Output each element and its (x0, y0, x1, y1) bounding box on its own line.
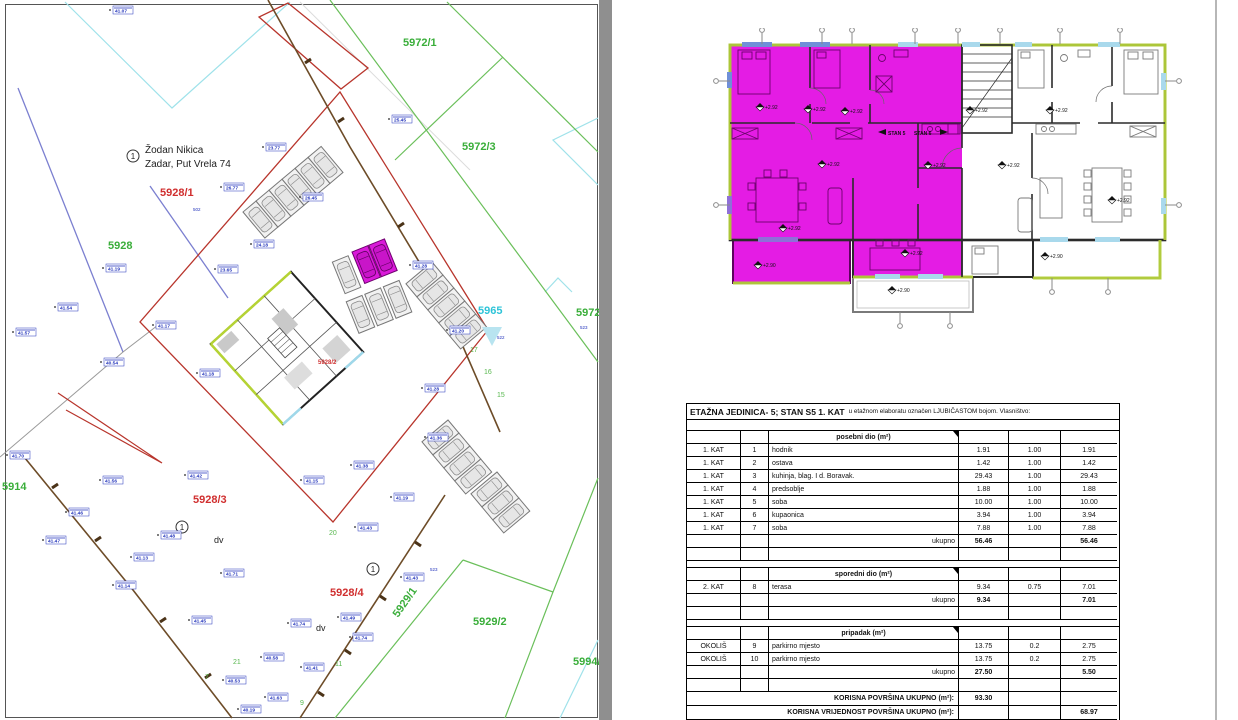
table-body: posebni dio (m²)1. KAT1hodnik1.911.001.9… (687, 420, 1119, 720)
svg-text:+2.90: +2.90 (1050, 254, 1063, 260)
table-cell: soba (769, 496, 959, 509)
point-label: 40.58 (260, 653, 284, 662)
table-cell: 1.88 (1061, 483, 1117, 496)
table-cell (741, 535, 769, 548)
table-row (687, 620, 1119, 627)
svg-text:26.45: 26.45 (305, 196, 317, 202)
point-label: 40.54 (100, 358, 124, 367)
table-cell: soba (769, 522, 959, 535)
point-label: 41.45 (188, 616, 212, 625)
table-row: posebni dio (m²) (687, 431, 1119, 444)
svg-text:1: 1 (180, 523, 185, 532)
point-label: 24.18 (250, 240, 274, 249)
table-cell: 56.46 (1061, 535, 1117, 548)
parcel-labels: 5965 (478, 305, 502, 317)
table-cell: 1 (741, 444, 769, 457)
table-cell: parkirno mjesto (769, 640, 959, 653)
table-cell: posebni dio (m²) (769, 431, 959, 444)
table-cell (741, 594, 769, 607)
table-cell: 1. KAT (687, 483, 741, 496)
table-cell (687, 431, 741, 444)
svg-text:+2.92: +2.92 (788, 226, 801, 232)
svg-text:41.70: 41.70 (12, 454, 24, 460)
point-label: 41.15 (300, 476, 324, 485)
table-cell (769, 607, 959, 620)
table-cell: ukupno (769, 666, 959, 679)
svg-text:+2.92: +2.92 (910, 251, 923, 257)
table-cell (1061, 431, 1117, 444)
table-cell (687, 548, 741, 561)
point-label: 41.18 (196, 369, 220, 378)
table-cell: 1.91 (1061, 444, 1117, 457)
parcel-labels: 5929/2 (473, 616, 507, 628)
table-row: 1. KAT5soba10.001.0010.00 (687, 496, 1119, 509)
table-cell: 1. KAT (687, 496, 741, 509)
table-cell (1061, 607, 1117, 620)
table-cell: 7 (741, 522, 769, 535)
svg-text:41.56: 41.56 (105, 479, 117, 485)
table-cell: 3.94 (959, 509, 1009, 522)
table-cell: OKOLIŠ (687, 653, 741, 666)
point-label: 41.56 (99, 476, 123, 485)
green-point-numbers: 17 (470, 347, 478, 354)
table-row: 1. KAT1hodnik1.911.001.91 (687, 444, 1119, 457)
building-footprint (211, 272, 364, 425)
svg-text:+2.90: +2.90 (897, 288, 910, 294)
table-cell: 9.34 (959, 581, 1009, 594)
table-row: OKOLIŠ10parkirno mjesto13.750.22.75 (687, 653, 1119, 666)
point-label: 41.17 (152, 321, 176, 330)
table-cell: hodnik (769, 444, 959, 457)
point-label: 41.28 (421, 384, 445, 393)
table-row (687, 607, 1119, 620)
table-cell: 56.46 (959, 535, 1009, 548)
table-cell: 0.75 (1009, 581, 1061, 594)
table-cell (1061, 679, 1117, 692)
point-label: 23.65 (214, 265, 238, 274)
table-cell: KORISNA VRIJEDNOST POVRŠINA UKUPNO (m²): (687, 706, 959, 720)
table-cell: 1. KAT (687, 444, 741, 457)
svg-text:23.65: 23.65 (220, 268, 232, 274)
dv-labels: dv (214, 535, 224, 545)
table-cell (769, 679, 959, 692)
table-cell: 5.50 (1061, 666, 1117, 679)
table-cell (741, 607, 769, 620)
parcel-labels: 5929/1 (391, 585, 420, 619)
svg-text:26.77: 26.77 (226, 186, 238, 192)
point-label: 41.13 (130, 553, 154, 562)
table-row: sporedni dio (m²) (687, 568, 1119, 581)
parcel-labels: 5928/3 (193, 494, 227, 506)
table-cell (1009, 607, 1061, 620)
table-cell: terasa (769, 581, 959, 594)
svg-text:40.19: 40.19 (243, 708, 255, 714)
svg-text:41.15: 41.15 (306, 479, 318, 485)
table-cell (1009, 706, 1061, 720)
table-cell: 13.75 (959, 653, 1009, 666)
point-label: 41.70 (6, 451, 30, 460)
svg-text:41.36: 41.36 (430, 436, 442, 442)
table-cell: 4 (741, 483, 769, 496)
dv-labels: dv (316, 623, 326, 633)
svg-text:41.49: 41.49 (343, 616, 355, 622)
svg-text:41.19: 41.19 (108, 267, 120, 273)
svg-text:41.57: 41.57 (18, 331, 30, 337)
dv-labels: dvdv (214, 535, 326, 633)
page-right-border (1215, 0, 1217, 720)
table-title-rest: u etažnom elaboratu označen LJUBIČASTOM … (849, 408, 1031, 415)
svg-text:1: 1 (131, 152, 136, 161)
svg-text:+2.92: +2.92 (1007, 163, 1020, 169)
table-cell (1009, 568, 1061, 581)
stan-left-label: STAN 5 (888, 131, 906, 137)
table-cell: 3 (741, 470, 769, 483)
green-point-numbers: 16 (484, 369, 492, 376)
table-cell (1009, 548, 1061, 561)
table-row: OKOLIŠ9parkirno mjesto13.750.22.75 (687, 640, 1119, 653)
table-row (687, 679, 1119, 692)
point-label: 41.54 (54, 303, 78, 312)
svg-text:41.38: 41.38 (356, 464, 368, 470)
table-row: 2. KAT8terasa9.340.757.01 (687, 581, 1119, 594)
point-label: 41.38 (350, 461, 374, 470)
point-label: 41.43 (400, 573, 424, 582)
parcel-labels: 5928/1 (160, 187, 194, 199)
elaborat-page: 1 Žodan Nikica Zadar, Put Vrela 74 1 1 5… (0, 0, 1238, 720)
table-cell: 1.42 (1061, 457, 1117, 470)
point-label: 40.19 (237, 705, 261, 714)
svg-text:41.14: 41.14 (118, 584, 130, 590)
table-cell: sporedni dio (m²) (769, 568, 959, 581)
table-cell: 29.43 (959, 470, 1009, 483)
point-label: 41.71 (220, 569, 244, 578)
svg-text:+2.90: +2.90 (763, 263, 776, 269)
svg-text:40.54: 40.54 (106, 361, 118, 367)
svg-text:+2.92: +2.92 (850, 109, 863, 115)
point-label: 41.43 (354, 523, 378, 532)
point-label: 41.49 (337, 613, 361, 622)
table-cell: 1. KAT (687, 509, 741, 522)
table-cell (687, 535, 741, 548)
svg-text:+2.92: +2.92 (1055, 108, 1068, 114)
svg-text:41.71: 41.71 (226, 572, 238, 578)
table-cell (959, 627, 1009, 640)
small-id-labels: 523 (580, 325, 588, 330)
point-label: 41.14 (112, 581, 136, 590)
point-label: 41.19 (102, 264, 126, 273)
balcony (853, 277, 973, 312)
svg-text:41.43: 41.43 (360, 526, 372, 532)
table-cell: 1.42 (959, 457, 1009, 470)
table-cell: kuhinja, blag. I d. Boravak. (769, 470, 959, 483)
table-title: ETAŽNA JEDINICA- 5; STAN S5 1. KAT u eta… (687, 404, 1119, 420)
table-cell: 1.00 (1009, 457, 1061, 470)
table-row: 1. KAT6kupaonica3.941.003.94 (687, 509, 1119, 522)
table-cell: 1.00 (1009, 470, 1061, 483)
svg-text:41.13: 41.13 (136, 556, 148, 562)
area-table: ETAŽNA JEDINICA- 5; STAN S5 1. KAT u eta… (686, 403, 1120, 720)
green-point-numbers: 20 (329, 530, 337, 537)
point-label: 40.53 (222, 676, 246, 685)
table-cell: 2. KAT (687, 581, 741, 594)
table-cell (1009, 679, 1061, 692)
table-cell (1061, 548, 1117, 561)
svg-text:41.20: 41.20 (452, 329, 464, 335)
small-id-labels: 502 (193, 207, 201, 212)
table-cell: 1. KAT (687, 470, 741, 483)
svg-text:41.74: 41.74 (355, 636, 367, 642)
table-cell: 7.01 (1061, 594, 1117, 607)
table-cell (769, 548, 959, 561)
point-label: 41.57 (12, 328, 36, 337)
table-cell: 13.75 (959, 640, 1009, 653)
table-row (687, 420, 1119, 431)
table-title-main: ETAŽNA JEDINICA- 5; STAN S5 1. KAT (690, 407, 845, 417)
svg-text:41.17: 41.17 (158, 324, 170, 330)
parcel-labels: 5972/3 (462, 141, 496, 153)
parcel-labels: 5928/2 (318, 360, 337, 366)
point-label: 41.47 (42, 536, 66, 545)
table-cell: 7.88 (959, 522, 1009, 535)
svg-text:41.42: 41.42 (190, 474, 202, 480)
table-cell (687, 679, 741, 692)
svg-text:41.07: 41.07 (115, 9, 127, 15)
table-row: ukupno9.347.01 (687, 594, 1119, 607)
svg-text:41.48: 41.48 (163, 534, 175, 540)
small-id-labels: 522 (497, 335, 505, 340)
svg-text:41.41: 41.41 (306, 666, 318, 672)
table-cell: 68.97 (1061, 706, 1117, 720)
table-cell: 93.30 (959, 692, 1009, 706)
owner-address: Zadar, Put Vrela 74 (145, 159, 231, 170)
table-cell: 1.00 (1009, 509, 1061, 522)
point-label: 41.07 (109, 6, 133, 15)
table-cell: 9 (741, 640, 769, 653)
table-cell: 2.75 (1061, 653, 1117, 666)
table-cell (1061, 692, 1117, 706)
table-cell: 3.94 (1061, 509, 1117, 522)
table-cell: ukupno (769, 535, 959, 548)
point-label: 23.77 (262, 143, 286, 152)
table-cell (959, 548, 1009, 561)
svg-text:41.43: 41.43 (406, 576, 418, 582)
point-label: 41.63 (264, 693, 288, 702)
table-cell (1009, 431, 1061, 444)
panel-divider (599, 0, 612, 720)
table-cell: pripadak (m²) (769, 627, 959, 640)
table-cell (1009, 692, 1061, 706)
table-cell: 1. KAT (687, 457, 741, 470)
table-cell: 27.50 (959, 666, 1009, 679)
svg-text:+2.92: +2.92 (765, 105, 778, 111)
table-cell (741, 627, 769, 640)
table-cell (1009, 627, 1061, 640)
point-label: 41.19 (390, 493, 414, 502)
table-cell: ostava (769, 457, 959, 470)
table-cell (1009, 594, 1061, 607)
green-point-numbers: 21 (233, 659, 241, 666)
table-cell: 2.75 (1061, 640, 1117, 653)
svg-text:24.18: 24.18 (256, 243, 268, 249)
svg-text:41.54: 41.54 (60, 306, 72, 312)
point-label: 25.45 (388, 115, 412, 124)
svg-text:25.45: 25.45 (394, 118, 406, 124)
table-cell (741, 666, 769, 679)
table-row: ukupno27.505.50 (687, 666, 1119, 679)
svg-text:1: 1 (371, 565, 376, 574)
table-row: KORISNA VRIJEDNOST POVRŠINA UKUPNO (m²):… (687, 706, 1119, 720)
table-cell: 5 (741, 496, 769, 509)
table-cell (687, 607, 741, 620)
table-cell (741, 679, 769, 692)
green-point-numbers: 11 (335, 661, 342, 668)
table-cell: 1.00 (1009, 483, 1061, 496)
table-cell: 6 (741, 509, 769, 522)
point-label: 41.74 (287, 619, 311, 628)
table-row (687, 561, 1119, 568)
terrace-s5 (733, 240, 850, 283)
owner-annotation: 1 Žodan Nikica Zadar, Put Vrela 74 (127, 143, 231, 170)
table-row (687, 548, 1119, 561)
table-cell: OKOLIŠ (687, 640, 741, 653)
svg-text:+2.92: +2.92 (933, 163, 946, 169)
svg-text:40.58: 40.58 (266, 656, 278, 662)
svg-text:41.74: 41.74 (293, 622, 305, 628)
table-cell (687, 594, 741, 607)
table-row: 1. KAT2ostava1.421.001.42 (687, 457, 1119, 470)
green-point-numbers: 9 (300, 700, 304, 707)
svg-text:41.47: 41.47 (48, 539, 60, 545)
table-cell: 8 (741, 581, 769, 594)
table-cell (687, 627, 741, 640)
point-label: 26.77 (220, 183, 244, 192)
table-row: 1. KAT4predsoblje1.881.001.88 (687, 483, 1119, 496)
green-point-numbers: 7 (205, 674, 209, 681)
table-cell: 9.34 (959, 594, 1009, 607)
table-row: 1. KAT7soba7.881.007.88 (687, 522, 1119, 535)
parcel-labels: 5928 (108, 240, 132, 252)
table-row: pripadak (m²) (687, 627, 1119, 640)
circle-marker: 1 1 (176, 521, 379, 575)
table-cell: ukupno (769, 594, 959, 607)
table-cell (741, 548, 769, 561)
svg-text:41.19: 41.19 (396, 496, 408, 502)
table-cell: 10.00 (959, 496, 1009, 509)
table-cell: 1.00 (1009, 522, 1061, 535)
table-cell (959, 607, 1009, 620)
table-row: 1. KAT3kuhinja, blag. I d. Boravak.29.43… (687, 470, 1119, 483)
table-cell: 0.2 (1009, 640, 1061, 653)
svg-text:+2.92: +2.92 (827, 162, 840, 168)
table-cell: 7.01 (1061, 581, 1117, 594)
parcel-labels: 5928/4 (330, 587, 365, 599)
table-cell (959, 706, 1009, 720)
parcel-labels: 5972/2 (576, 307, 600, 319)
svg-text:41.18: 41.18 (202, 372, 214, 378)
svg-text:40.53: 40.53 (228, 679, 240, 685)
svg-text:41.28: 41.28 (427, 387, 439, 393)
point-label: 41.28 (409, 261, 433, 270)
table-cell (959, 679, 1009, 692)
owner-name: Žodan Nikica (145, 143, 204, 156)
parcel-labels: 5914 (2, 481, 27, 493)
table-cell (959, 431, 1009, 444)
floor-plan: +2.92 +2.92 +2.92 +2.92 +2.92 +2.92 +2.9… (700, 28, 1192, 340)
table-cell (1061, 568, 1117, 581)
table-cell: KORISNA POVRŠINA UKUPNO (m²): (687, 692, 959, 706)
table-cell (1009, 535, 1061, 548)
table-row: ukupno56.4656.46 (687, 535, 1119, 548)
table-cell: 1.00 (1009, 444, 1061, 457)
svg-text:41.45: 41.45 (194, 619, 206, 625)
table-cell (687, 568, 741, 581)
svg-text:23.77: 23.77 (268, 146, 280, 152)
table-cell (1061, 627, 1117, 640)
svg-text:+2.92: +2.92 (813, 107, 826, 113)
svg-text:+2.92: +2.92 (975, 108, 988, 114)
parcel-labels: 5972/1 (403, 37, 437, 49)
stan-right-label: STAN 6 (914, 131, 932, 137)
table-cell (687, 666, 741, 679)
point-label: 41.41 (300, 663, 324, 672)
point-label: 41.42 (184, 471, 208, 480)
table-cell: 1.88 (959, 483, 1009, 496)
table-cell (741, 568, 769, 581)
table-cell: 0.2 (1009, 653, 1061, 666)
table-cell: 1.00 (1009, 496, 1061, 509)
svg-text:41.63: 41.63 (270, 696, 282, 702)
table-cell: parkirno mjesto (769, 653, 959, 666)
table-cell: 10 (741, 653, 769, 666)
site-map: 1 Žodan Nikica Zadar, Put Vrela 74 1 1 5… (0, 0, 600, 720)
table-cell (741, 431, 769, 444)
table-cell: predsoblje (769, 483, 959, 496)
point-label: 41.48 (157, 531, 181, 540)
table-cell: 10.00 (1061, 496, 1117, 509)
table-cell: 29.43 (1061, 470, 1117, 483)
table-cell: kupaonica (769, 509, 959, 522)
svg-text:+2.92: +2.92 (1117, 198, 1130, 204)
table-cell: 1. KAT (687, 522, 741, 535)
svg-text:41.46: 41.46 (71, 511, 83, 517)
table-cell: 2 (741, 457, 769, 470)
green-point-numbers: 15 (497, 392, 505, 399)
table-cell (1009, 666, 1061, 679)
parcel-labels: 5994/1 (573, 656, 600, 668)
svg-text:41.28: 41.28 (415, 264, 427, 270)
table-row: KORISNA POVRŠINA UKUPNO (m²):93.30 (687, 692, 1119, 706)
table-cell (959, 568, 1009, 581)
table-cell: 1.91 (959, 444, 1009, 457)
table-cell: 7.88 (1061, 522, 1117, 535)
small-id-labels: 523 (430, 567, 438, 572)
